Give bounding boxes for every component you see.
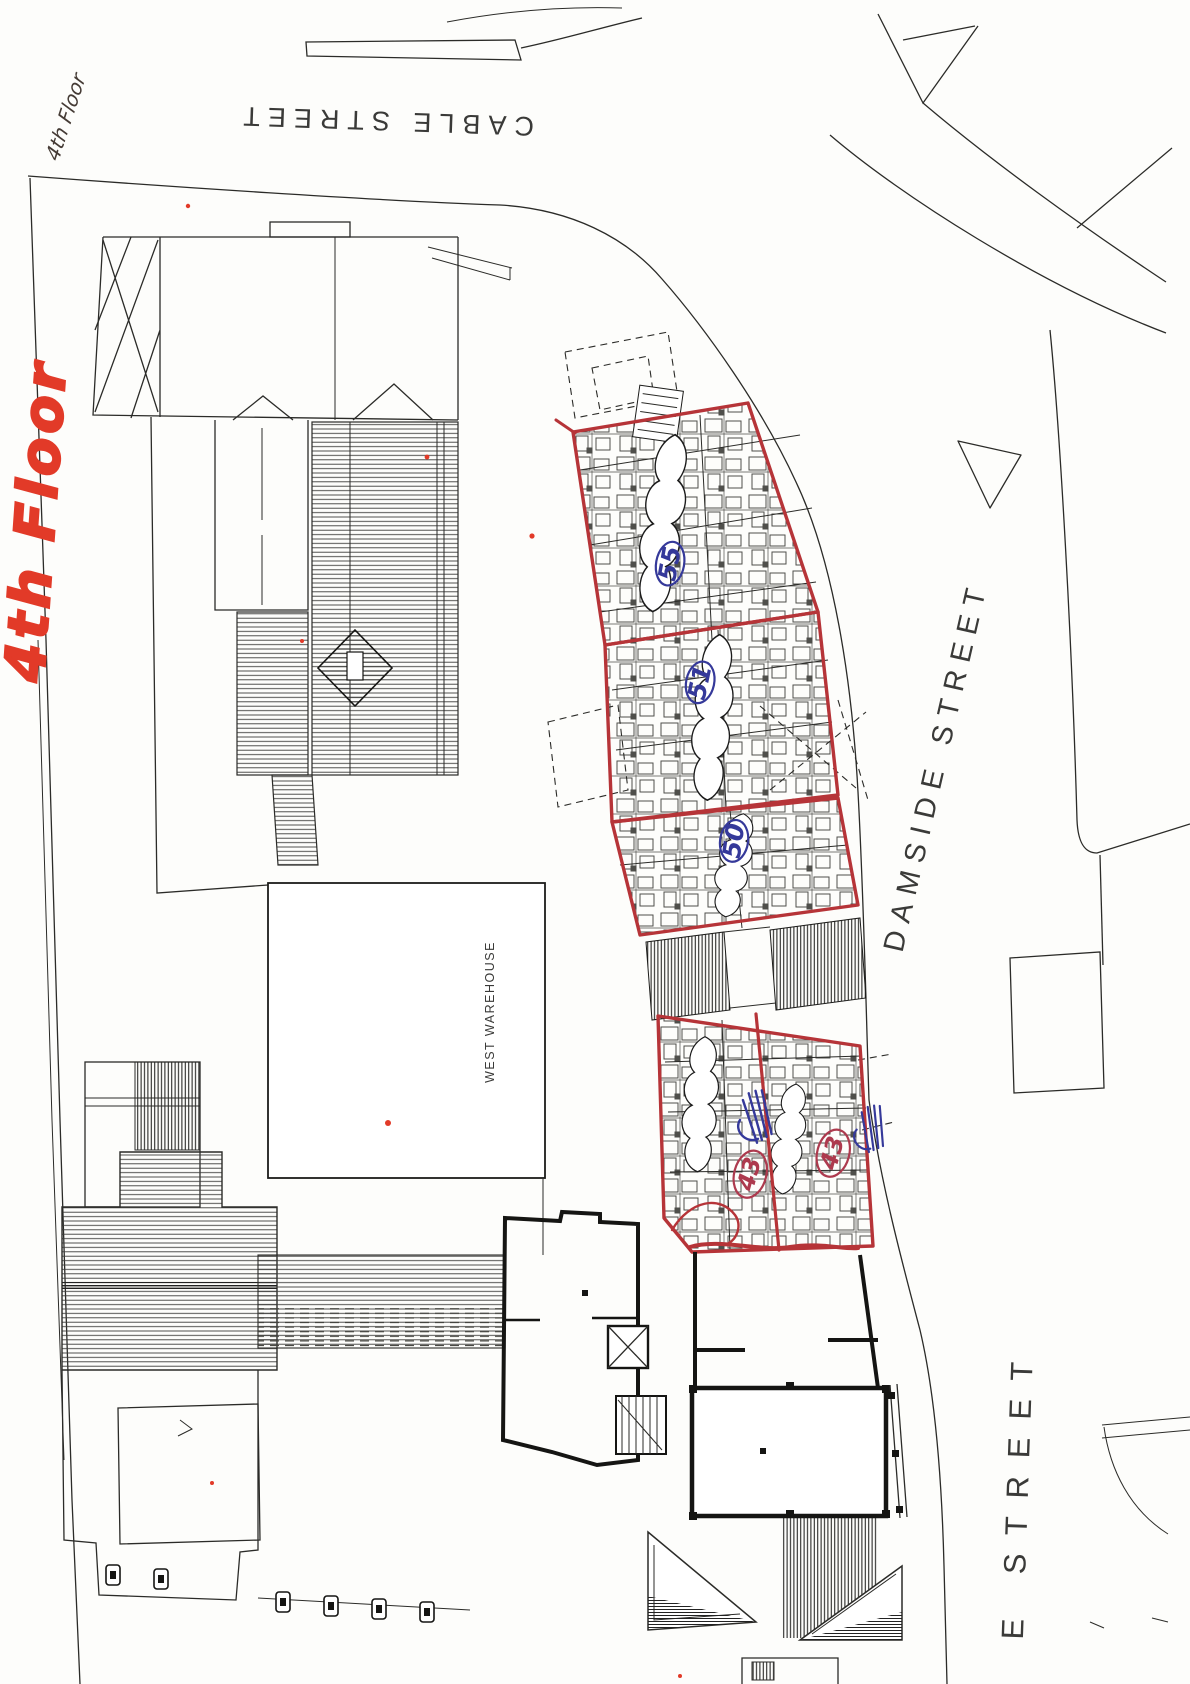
cable-street-label: CABLE STREET xyxy=(235,101,534,141)
street-lines xyxy=(28,8,1172,1684)
damside-street-label: DAMSIDE STREET xyxy=(878,577,995,955)
unit-number-50: 50 xyxy=(716,818,751,864)
west-warehouse-building: WEST WAREHOUSE xyxy=(268,883,545,1255)
scanned-site-plan: WEST WAREHOUSE xyxy=(0,0,1190,1684)
north-warehouse-building xyxy=(93,222,458,893)
east-parcels xyxy=(958,330,1190,1628)
floor-note-small: 4th Floor xyxy=(41,68,91,165)
south-building xyxy=(503,1212,907,1684)
red-outlined-apartment-blocks xyxy=(548,332,894,1252)
svg-text:50: 50 xyxy=(717,822,751,860)
apartment-block-3 xyxy=(612,798,858,935)
site-plan-drawing: WEST WAREHOUSE xyxy=(0,0,1190,1684)
floor-note-large: 4th Floor xyxy=(0,357,80,685)
apartment-block-2 xyxy=(605,612,838,822)
west-warehouse-label: WEST WAREHOUSE xyxy=(483,941,497,1083)
svg-text:55: 55 xyxy=(652,544,687,583)
e-street-label: E STREET xyxy=(995,1343,1040,1640)
apartment-block-1 xyxy=(556,385,818,645)
